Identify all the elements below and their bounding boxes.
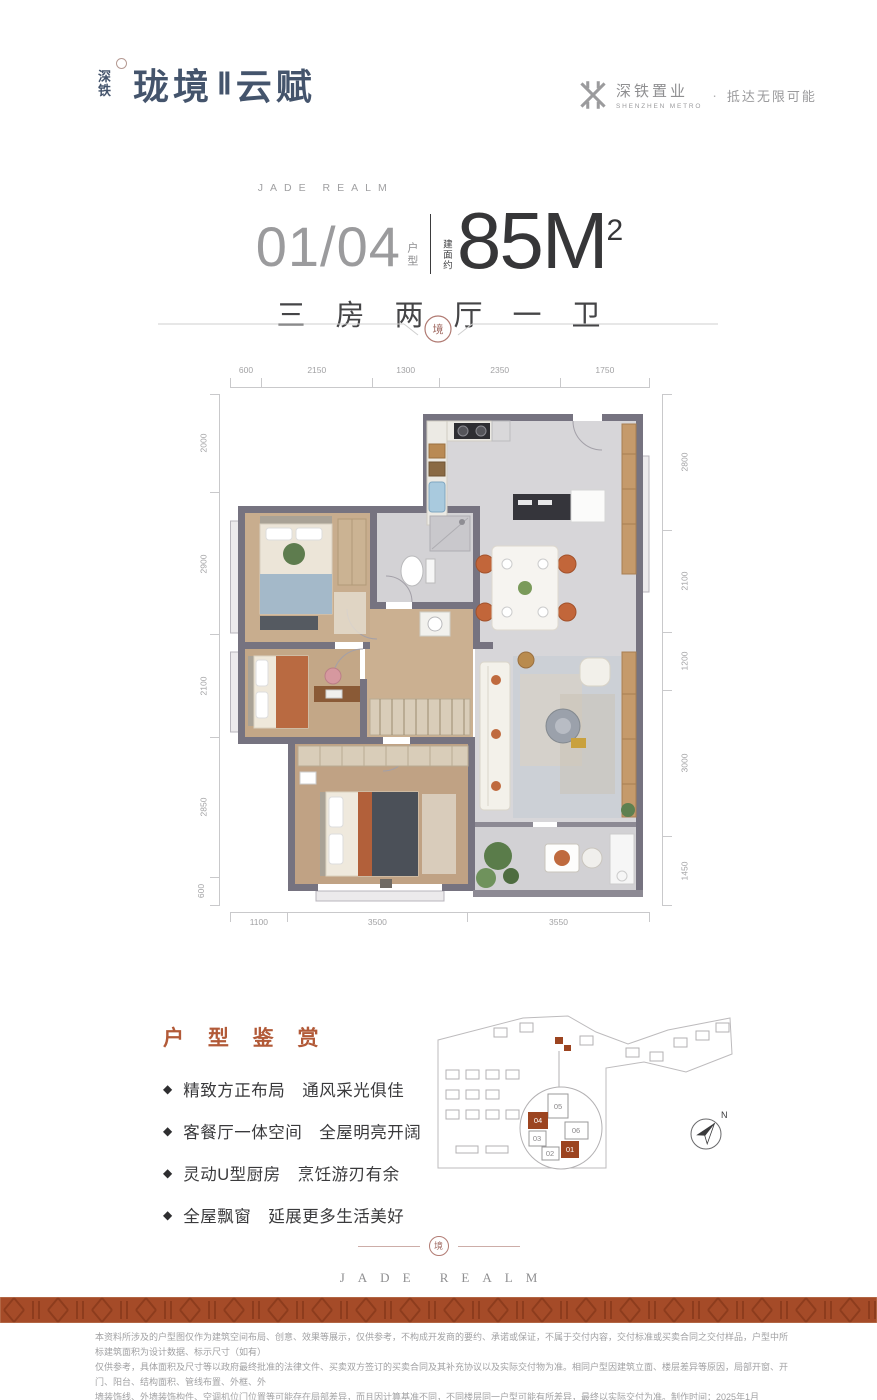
area-superscript: 2 [607,214,622,247]
dim-label: 600 [231,365,261,375]
plant-icon [283,543,305,565]
logo-main-text: 珑境 [133,58,213,110]
rug [422,794,456,874]
dim-label: 2350 [440,365,560,375]
disclaimer-line: 仅供参考，具体面积及尺寸等以政府最终批准的法律文件、买卖双方签订的买卖合同及其补… [95,1360,789,1390]
svg-text:02: 02 [546,1149,554,1158]
bay-window-master [316,891,444,901]
diamond-bullet-icon: ◆ [163,1208,172,1222]
brand-divider-line [458,1246,520,1247]
features-list: ◆精致方正布局 通风采光俱佳 ◆客餐厅一体空间 全屋明亮开阔 ◆灵动U型厨房 烹… [163,1077,421,1227]
feature-item: ◆全屋飘窗 延展更多生活美好 [163,1203,421,1227]
bay-window-bedroom2 [231,521,239,633]
seal-char: 境 [433,322,444,336]
dim-label: 1450 [679,861,689,880]
disclaimer-line: 本资料所涉及的户型图仅作为建筑空间布局、创意、效果等展示，仅供参考，不构成开发商… [95,1330,789,1360]
sofa-pillow [491,675,501,685]
metro-name: 深铁置业 [616,80,702,101]
svg-text:05: 05 [554,1102,562,1111]
bed-headboard [248,656,254,726]
entry-cabinet [571,490,605,522]
dim-label: 1200 [679,652,689,671]
dim-label: 1300 [373,365,439,375]
metro-sub: SHENZHEN METRO [616,103,702,110]
kitchen-appliance [429,444,445,458]
brand-jade-realm: JADE REALM [0,1270,877,1286]
developer-logo: 深铁置业 SHENZHEN METRO · 抵达无限可能 [578,80,817,110]
feature-item: ◆精致方正布局 通风采光俱佳 [163,1077,421,1101]
floor-plan-drawing [230,394,650,906]
compass: N [691,1110,728,1149]
dim-label: 2800 [679,453,689,472]
footer-pattern-band [0,1297,877,1323]
bed-blanket [260,574,332,614]
feature-item: ◆客餐厅一体空间 全屋明亮开阔 [163,1119,421,1143]
nightstand [300,772,316,784]
features-title: 户 型 鉴 赏 [163,1022,421,1052]
poster-page: 深 铁 珑境 Ⅱ 云赋 深铁置业 SHENZHEN METRO · 抵达无限可能… [0,0,877,1400]
bay-window-bedroom3 [231,652,239,732]
dim-label: 1750 [561,365,649,375]
bed-blanket [276,656,308,728]
diamond-bullet-icon: ◆ [163,1082,172,1096]
sofa-pillow [491,729,501,739]
metro-logo-icon [578,81,608,109]
tv-cabinet [622,652,636,817]
tray [571,738,586,748]
metro-name-block: 深铁置业 SHENZHEN METRO [616,80,702,110]
side-table [582,848,602,868]
desk-chair [325,668,341,684]
headline-eyebrow: JADE REALM [258,182,621,194]
shower-head-icon [459,519,465,525]
bay-window-living [642,456,649,592]
bed-bench [260,616,318,630]
logo-prefix-bottom: 铁 [98,84,112,98]
logo-suffix-text: 云赋 [236,58,316,110]
table-plant-icon [518,581,532,595]
svg-text:01: 01 [566,1145,574,1154]
ruler-left: 2000 2900 2100 2850 600 [196,394,220,906]
fridge-icon [492,421,510,441]
logo-numeral: Ⅱ [217,67,232,102]
laptop-icon [326,690,342,698]
separator-dot: · [712,87,717,103]
ruler-top: 600 2150 1300 2350 1750 [230,364,650,388]
unit-number: 01/04 [256,218,401,276]
logo-seal-icon [116,58,127,69]
ruler-right: 2800 2100 1200 3000 1450 [662,394,686,906]
kitchen-sink-icon [429,482,445,512]
dim-label: 600 [196,884,206,898]
dim-label: 2900 [198,554,208,573]
balcony-plant-icon [484,842,512,870]
feature-item: ◆灵动U型厨房 烹饪游刃有余 [163,1161,421,1185]
bed-blanket [372,792,418,876]
brand-seal-icon: 境 [429,1236,449,1256]
washing-machine-icon [610,834,634,884]
slippers [380,879,392,888]
project-logo: 深 铁 珑境 Ⅱ 云赋 [98,58,316,110]
bed-runner [358,792,372,876]
site-plan: 05 04 03 06 02 01 N [428,1010,740,1188]
diamond-bullet-icon: ◆ [163,1166,172,1180]
bookshelf [370,699,470,735]
compass-n-label: N [721,1110,728,1120]
living-room [480,652,636,818]
balcony-slider-left [475,822,533,827]
plant-icon [621,803,635,817]
logo-prefix: 深 铁 [98,70,112,98]
dim-label: 1100 [231,917,287,927]
dim-label: 2150 [262,365,372,375]
balcony-plant-icon [503,868,519,884]
balcony-railing [473,890,643,897]
area-value: 85M2 [457,196,621,276]
logo-prefix-top: 深 [98,70,112,84]
shoe-cabinet [513,494,571,520]
ruler-bottom: 1100 3500 3550 [230,912,650,936]
dim-label: 3000 [679,754,689,773]
tall-cabinet [622,424,636,574]
bed-headboard [320,792,326,876]
dining-chair [476,603,494,621]
svg-text:06: 06 [572,1126,580,1135]
bottom-brand: 境 JADE REALM [0,1236,877,1286]
rug [334,592,366,634]
toilet-icon [401,556,423,586]
dining-chair [558,555,576,573]
armchair [580,658,610,686]
seal-divider: 境 [158,310,718,348]
dim-label: 3550 [468,917,649,927]
floor-plan-block: 600 2150 1300 2350 1750 2000 2900 2100 2… [180,360,700,942]
balcony-slider-right [557,822,636,827]
master-wardrobe [298,746,468,766]
bedroom2 [260,516,366,634]
dim-label: 2100 [198,677,208,696]
metro-slogan: 抵达无限可能 [727,86,817,105]
features-section: 户 型 鉴 赏 ◆精致方正布局 通风采光俱佳 ◆客餐厅一体空间 全屋明亮开阔 ◆… [163,1022,421,1245]
disclaimer: 本资料所涉及的户型图仅作为建筑空间布局、创意、效果等展示，仅供参考，不构成开发商… [95,1330,789,1400]
svg-text:04: 04 [534,1116,542,1125]
chair-cushion [554,850,570,866]
dim-label: 3500 [288,917,467,927]
svg-text:03: 03 [533,1134,541,1143]
dim-label: 2000 [198,434,208,453]
brand-divider-line [358,1246,420,1247]
headline-divider-bar [430,214,431,274]
area-prefix: 建面约 [439,239,453,271]
kitchen-appliance [429,462,445,476]
bed-headboard [260,516,332,524]
sofa-pillow [491,781,501,791]
dim-label: 2100 [679,572,689,591]
disclaimer-line: 墙装饰线、外墙装饰构件、空调机位门位置等可能存在局部差异，而且因计算基准不同，不… [95,1390,789,1400]
dining-chair [558,603,576,621]
dining-chair [476,555,494,573]
balcony-plant-icon [476,868,496,888]
diamond-bullet-icon: ◆ [163,1124,172,1138]
dim-label: 2850 [198,798,208,817]
unit-label: 户型 [404,242,420,268]
ottoman [518,652,534,668]
